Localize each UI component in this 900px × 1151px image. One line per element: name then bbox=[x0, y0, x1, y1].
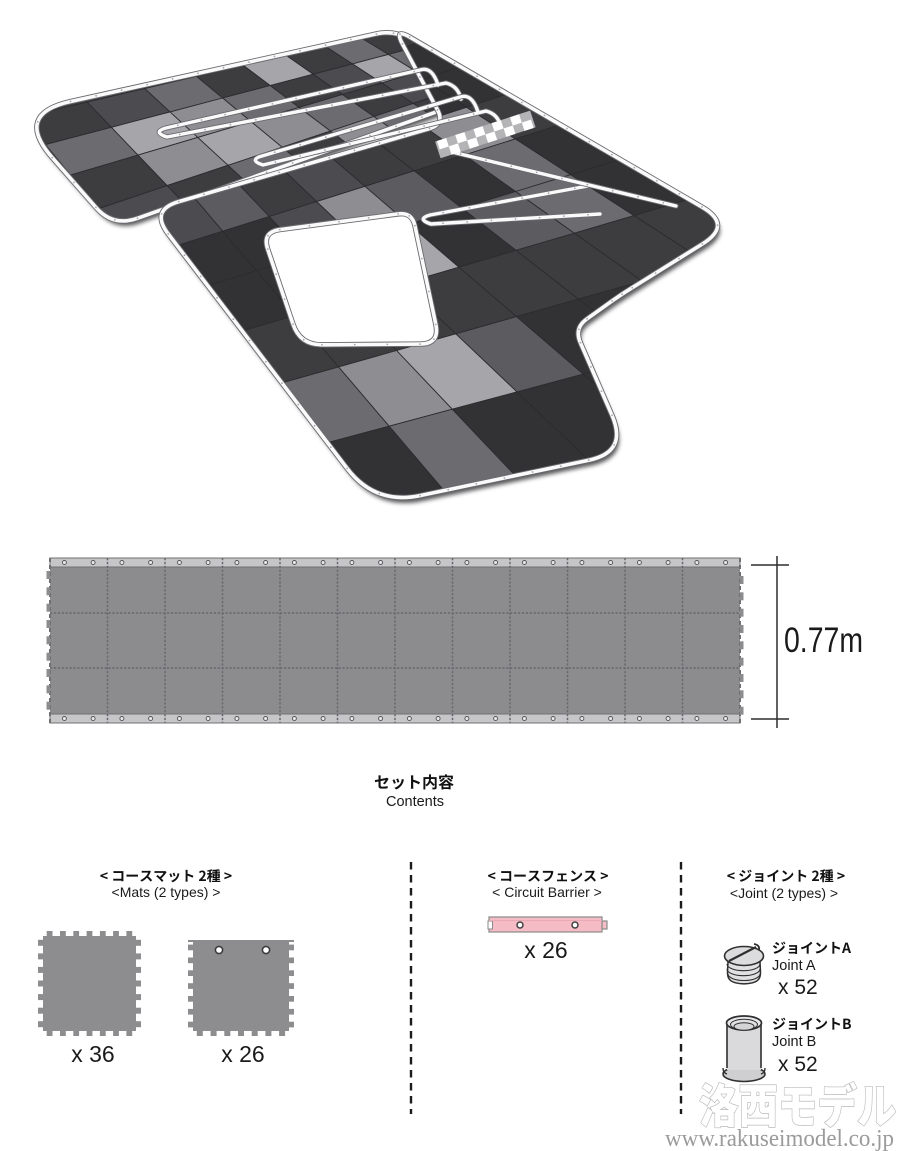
svg-text:x 36: x 36 bbox=[71, 1041, 114, 1067]
svg-text:< Circuit Barrier >: < Circuit Barrier > bbox=[492, 884, 602, 900]
svg-text:x 52: x 52 bbox=[778, 1053, 818, 1076]
svg-text:0.77m: 0.77m bbox=[784, 621, 863, 660]
svg-text:Joint B: Joint B bbox=[772, 1034, 816, 1050]
svg-text:www.rakuseimodel.co.jp: www.rakuseimodel.co.jp bbox=[665, 1126, 894, 1151]
svg-text:x 52: x 52 bbox=[778, 976, 818, 999]
svg-text:x 26: x 26 bbox=[524, 937, 567, 963]
svg-text:<Joint (2 types) >: <Joint (2 types) > bbox=[730, 885, 838, 901]
svg-text:Contents: Contents bbox=[386, 794, 444, 810]
svg-text:x 26: x 26 bbox=[221, 1041, 264, 1067]
svg-text:Joint A: Joint A bbox=[772, 958, 816, 974]
svg-text:<Mats (2 types) >: <Mats (2 types) > bbox=[112, 884, 221, 900]
